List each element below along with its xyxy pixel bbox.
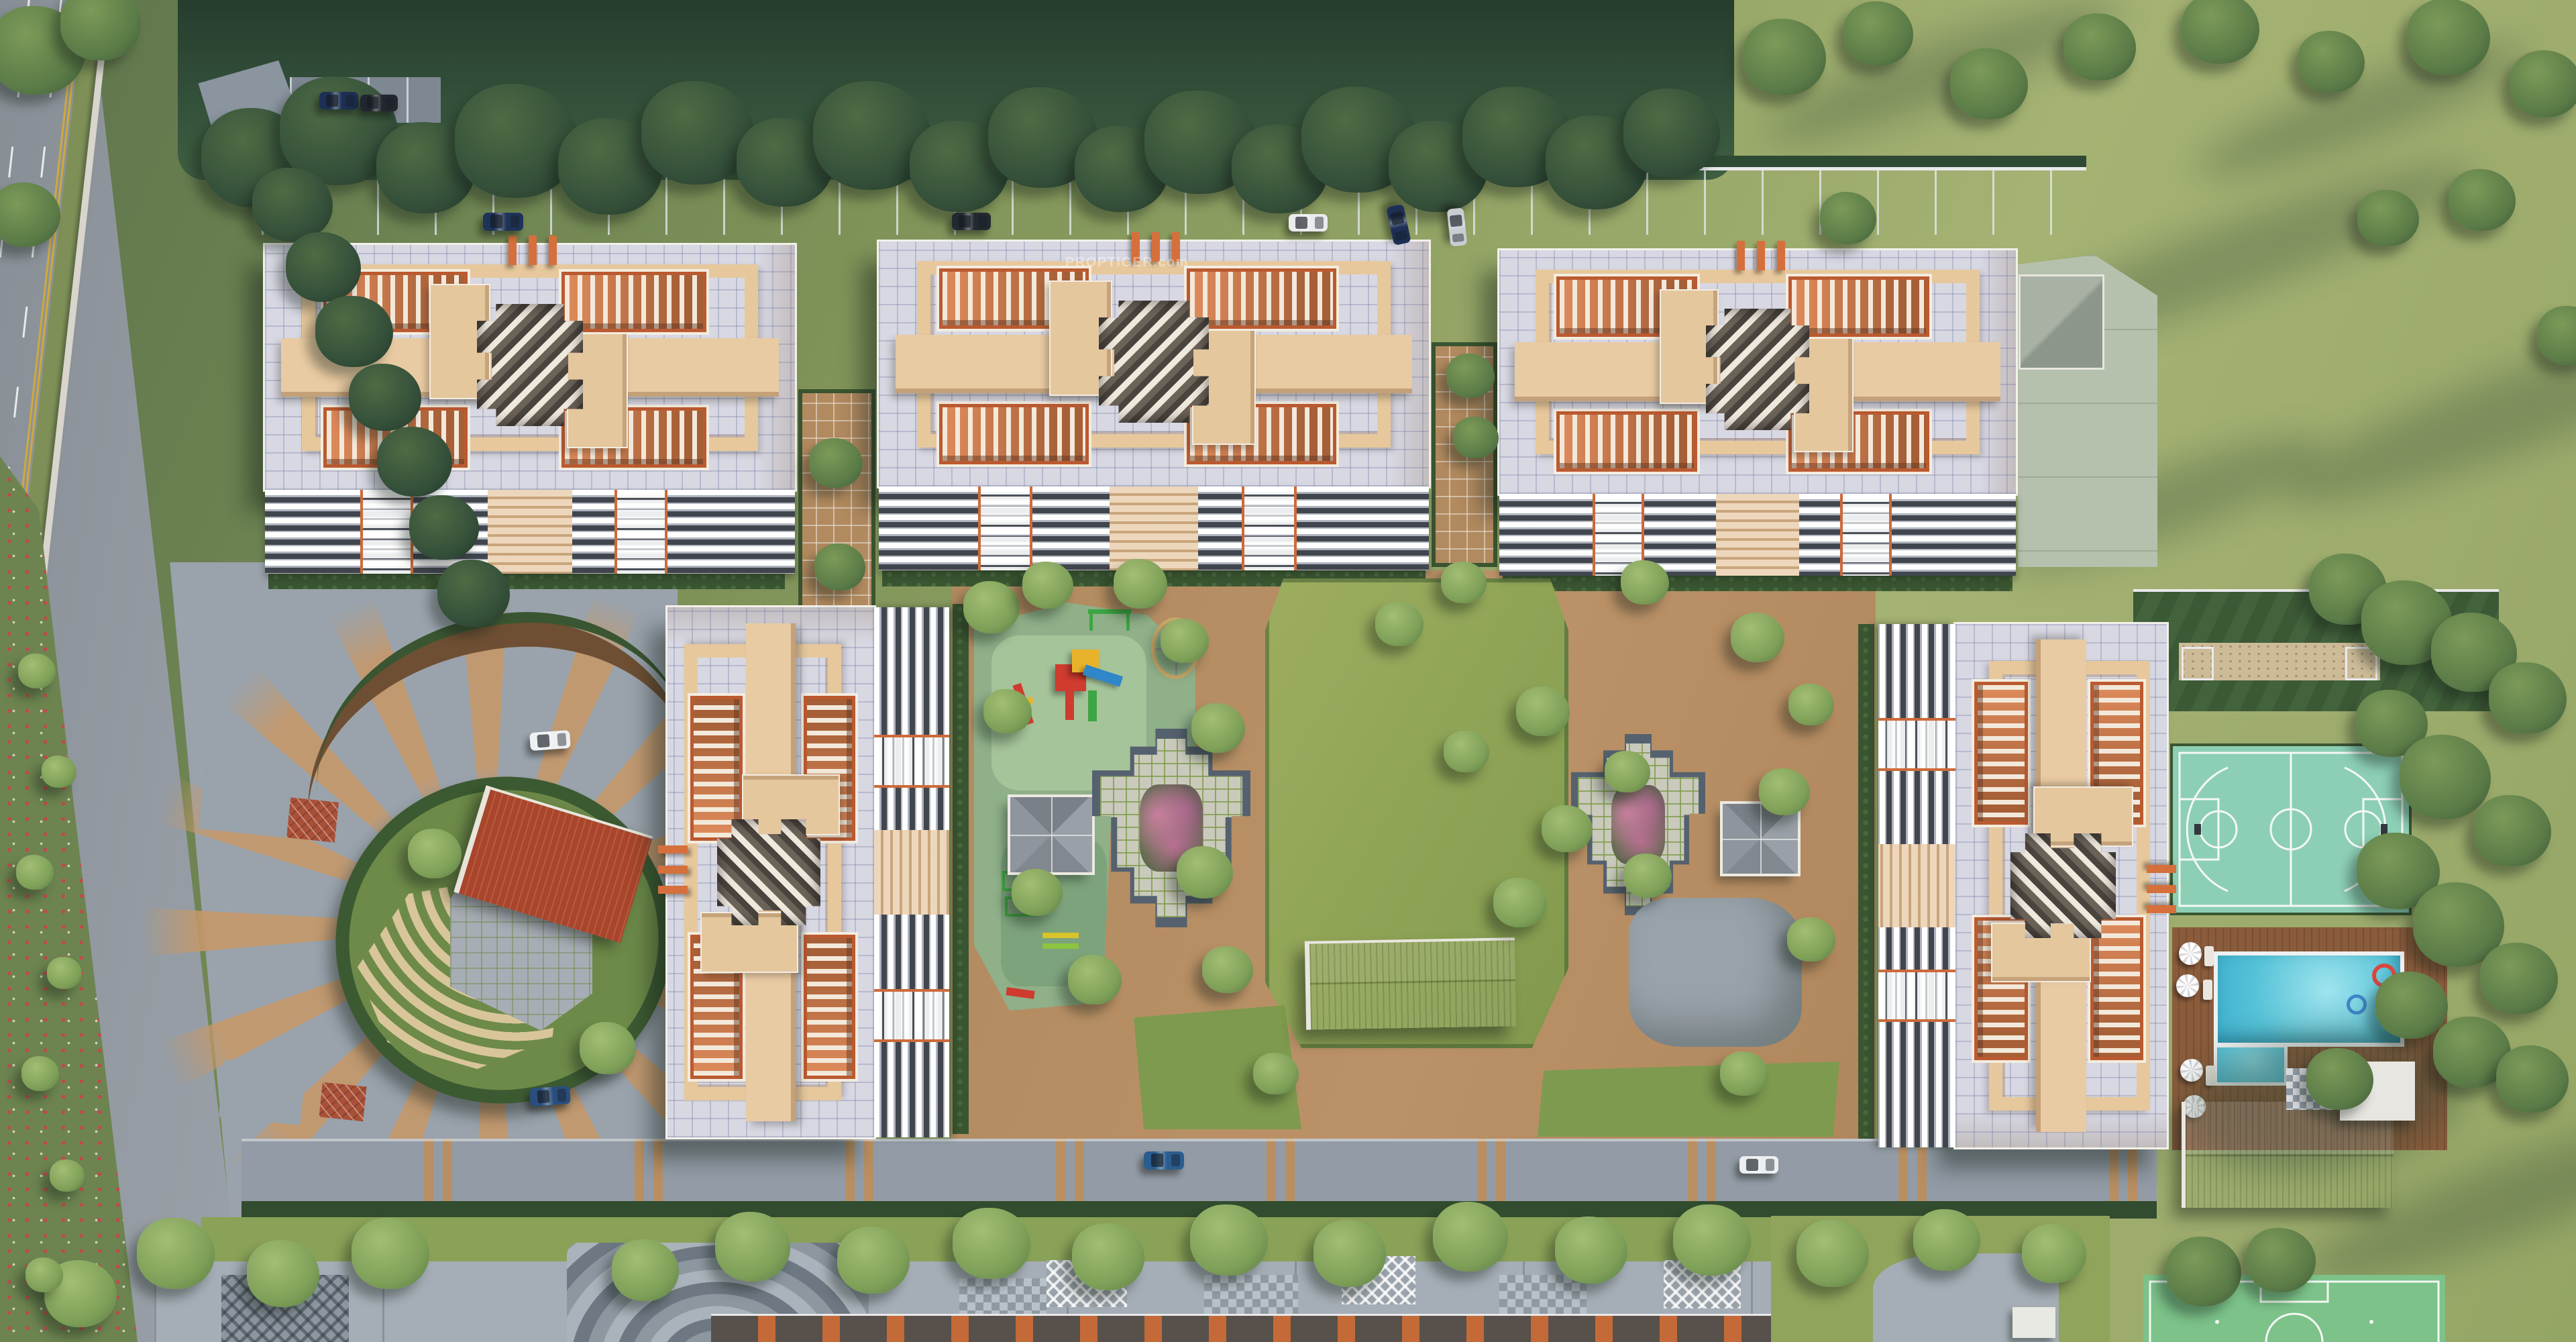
tree [1177,846,1233,898]
facade-center-band [1716,494,1799,576]
tree [1542,805,1593,852]
covered-parking-row [711,1314,1771,1342]
tree [1843,1,1913,66]
tree [1072,1223,1144,1290]
tree [1202,946,1253,993]
tree [1621,560,1669,605]
tower-2-roof [879,242,1429,486]
pool-umbrella [2180,1059,2203,1082]
tree [963,581,1020,633]
tree [18,654,56,688]
tower-2 [879,242,1429,570]
tree [612,1239,679,1301]
small-white-structure [2012,1307,2055,1338]
tree [409,495,479,560]
parked-car [529,729,571,750]
south-internal-road [241,1139,2157,1202]
tree [408,829,462,878]
facade-planting-strip [268,572,785,589]
tree [377,427,452,496]
tree [1950,48,2028,120]
tree [2357,190,2419,247]
facade-tower [614,490,667,574]
tower-4-facade [874,607,949,1137]
parked-car [483,213,523,231]
watermark: PROPTIGER.com [1065,255,1189,270]
tree [2306,1048,2373,1110]
tree [1796,1220,1869,1286]
tree [437,560,510,626]
tree [2246,1228,2316,1292]
tree [1787,917,1835,962]
balance-bars [1042,933,1079,938]
parked-car [1289,214,1328,231]
pergola [2090,917,2143,1060]
tree [1190,1204,1268,1276]
tree [809,438,863,488]
tree [1820,192,1876,244]
pergola [690,696,743,840]
gate-paving-south [219,1060,306,1125]
tree [25,1257,63,1292]
tree [47,957,82,989]
tree [1605,751,1650,793]
tree [2489,662,2567,734]
tree [1759,768,1810,815]
pergola [804,935,856,1079]
facade-center-band [874,830,949,915]
pool-umbrella [2176,974,2199,997]
tree [2375,972,2448,1038]
tree [1720,1051,1768,1096]
tree [42,756,76,788]
facade-tower [1242,486,1297,570]
stair-core [2010,833,2116,938]
tree [814,544,865,590]
tower-4 [667,607,949,1137]
sand-volleyball-pit [2179,643,2380,680]
flower-bed [1611,785,1665,865]
tree [352,1218,429,1290]
tree [1743,19,1826,95]
play-structure [1050,648,1124,725]
tree [247,1240,319,1306]
roof-chimneys [1737,241,1788,270]
gate-threshold-north [286,797,339,842]
pool-umbrella [2179,942,2202,965]
tree [2480,943,2558,1015]
swing-set [1088,609,1131,631]
parked-car [1739,1156,1778,1174]
facade-tower [1878,970,1955,1022]
courtyard-hedge-west [953,604,969,1134]
lawn-patch-south-east [1538,1062,1839,1137]
tree [2537,306,2576,365]
pool-float-blue [2347,994,2367,1015]
tree [1161,619,1209,663]
stair-core [1706,309,1809,431]
tree [60,0,141,60]
facade-tower [1840,494,1892,576]
tree [2510,50,2576,117]
tree [1731,613,1784,662]
parked-car [319,92,358,109]
roof-chimneys [2147,865,2176,916]
tower-1-facade [265,490,795,574]
site-plan-aerial-render: PROPTIGER.com [0,0,2576,1342]
facade-center-band [1110,486,1197,570]
tree [2182,0,2259,64]
tower-3-facade [1499,494,2016,576]
parked-car [529,1085,571,1106]
facade-tower [874,735,949,788]
tree [16,855,54,890]
tree [50,1159,85,1192]
stair-core [1099,301,1209,423]
gazebo-west [1010,797,1092,872]
pergola [939,404,1089,464]
tree [2022,1224,2086,1283]
pergola [1788,276,1929,337]
tree [1446,354,1495,398]
tree [1441,562,1487,604]
tree [715,1212,790,1281]
tree [2496,1045,2569,1112]
tree [2407,0,2490,75]
tree [1516,686,1570,736]
tree [1022,562,1073,609]
tree [315,296,393,368]
tree [2166,1237,2241,1306]
courtyard-hedge-east [1858,624,1874,1141]
tree [1253,1053,1299,1095]
tree [286,232,361,301]
patio-paving [1629,898,1802,1047]
pool-lounger [2203,980,2212,1000]
facade-tower [1878,718,1955,770]
tree [2400,735,2491,819]
facade-planting-strip [1503,574,2012,591]
stair-core [717,819,820,925]
gate-paving-north [199,767,293,837]
service-building [2021,276,2102,368]
tree-shadow [2268,298,2576,534]
facade-tower [360,490,413,574]
tree [1788,684,1834,726]
gate-threshold-south [319,1082,366,1122]
volleyball-court-line [2182,647,2214,680]
tree [1453,417,1499,459]
tree [21,1056,59,1091]
tree [1623,854,1672,898]
pool-lounger [2204,946,2214,966]
pergola [1187,268,1336,329]
facade-tower [874,989,949,1042]
tree [1444,731,1489,773]
facade-center-band [488,490,572,574]
tower-5 [1878,624,2167,1147]
parked-car [360,95,398,111]
tree [2298,31,2365,93]
tree [1623,89,1720,177]
facade-center-band [1878,844,1955,928]
roof-chimneys [508,236,559,265]
tree [2473,795,2551,867]
tower-3-roof [1499,250,2016,494]
tree [1433,1202,1508,1271]
tree [1555,1217,1627,1283]
tree [1673,1204,1751,1276]
pocket-garden-1 [798,389,875,631]
pergola [1556,411,1697,472]
tree [580,1022,636,1074]
roof-chimneys [658,843,688,894]
tree [349,364,421,430]
tree [1913,1209,1980,1271]
parked-car [952,213,991,230]
tree [1493,878,1547,927]
tower-4-roof [667,607,874,1137]
tower-2-facade [879,486,1429,570]
balance-bars [1042,943,1079,949]
clubhouse-roof [1305,937,1516,1029]
pergola [1974,682,2027,825]
tower-5-facade [1878,624,1955,1147]
stair-core [477,304,583,427]
parked-car [1144,1151,1184,1170]
tree [1191,703,1245,753]
tree [1068,955,1122,1004]
tree [983,689,1032,733]
tree [137,1218,215,1290]
tree [1313,1220,1386,1286]
facade-tower [978,486,1033,570]
tree [953,1208,1030,1280]
tree [1114,559,1167,609]
tree [2063,13,2136,80]
tower-3 [1499,250,2016,576]
tree [1375,602,1424,646]
tree [252,168,333,242]
tree [2449,169,2516,231]
tree [837,1227,910,1293]
pergola [561,272,706,332]
tower-5-roof [1955,624,2167,1147]
tree [1012,869,1063,916]
